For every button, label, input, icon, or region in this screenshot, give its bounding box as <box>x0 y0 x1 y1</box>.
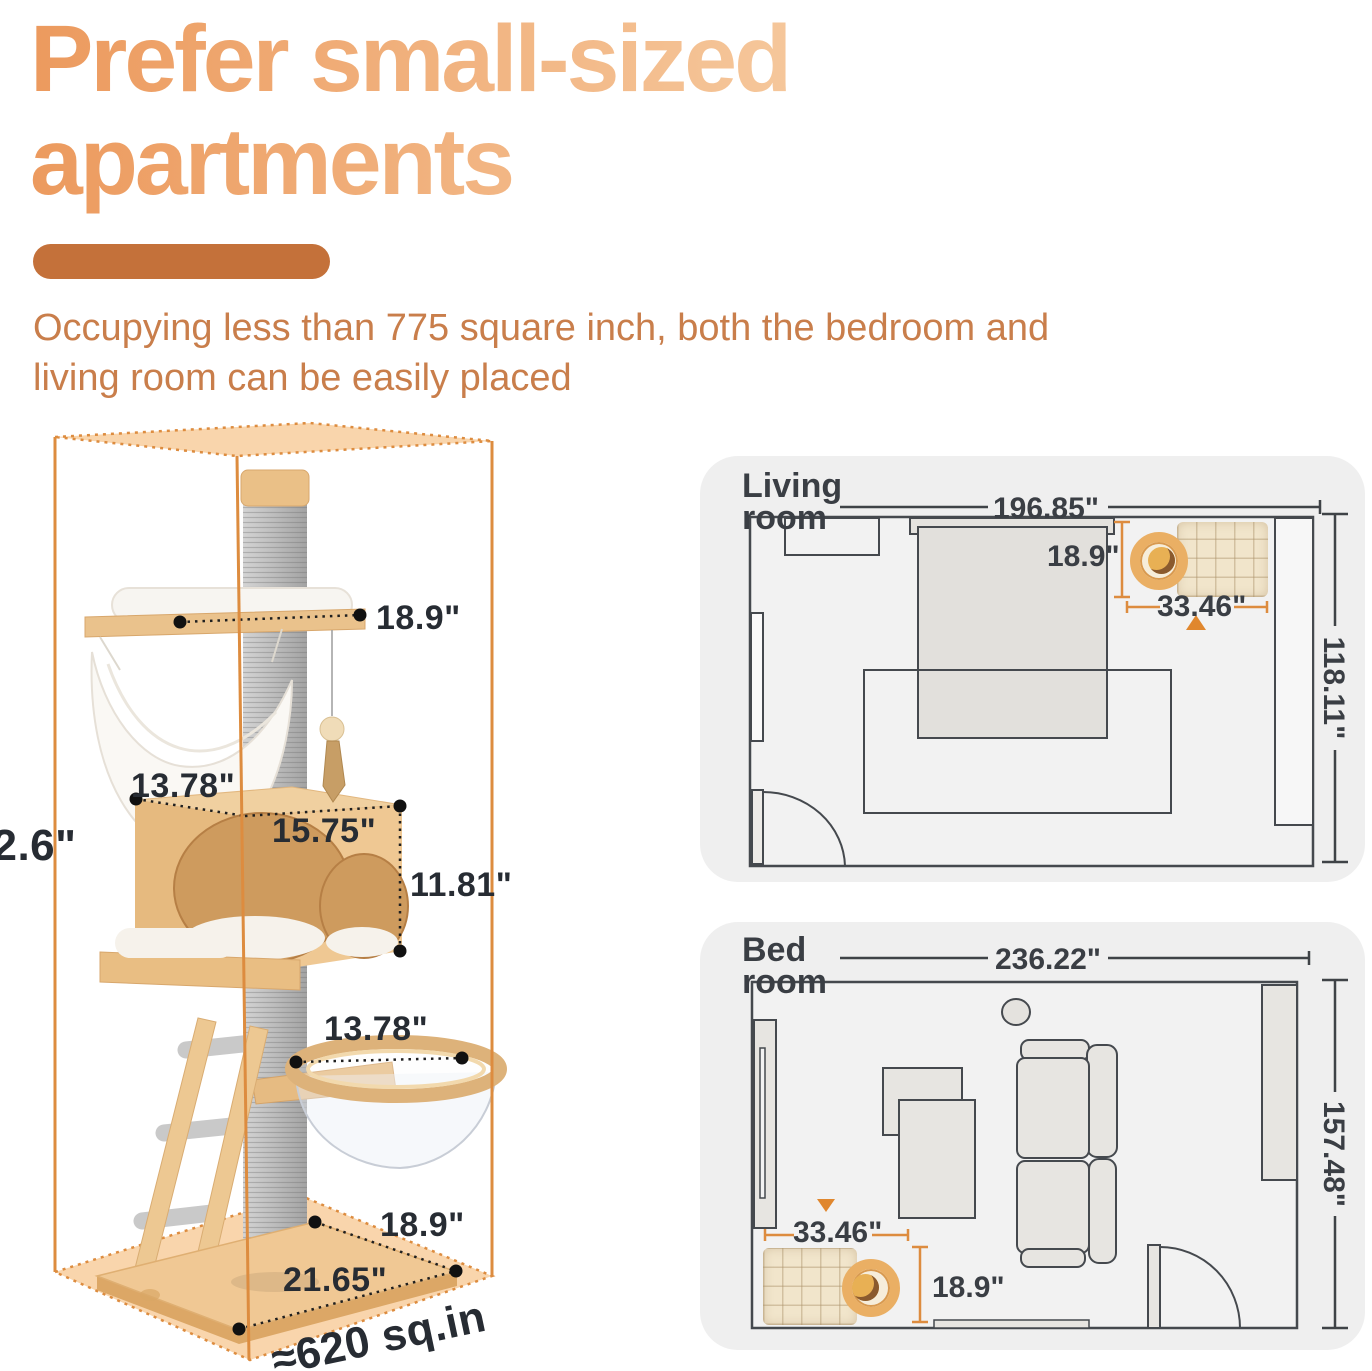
top-platform-width-label: 18.9" <box>376 599 461 638</box>
bottom-shelf <box>934 1320 1089 1328</box>
bowl-diameter-label: 13.78" <box>324 1010 428 1049</box>
page-title: Prefer small-sized apartments <box>30 8 1080 214</box>
product-infographic: Prefer small-sized apartments Occupying … <box>0 0 1372 1371</box>
living-room-title: Living room <box>742 470 842 534</box>
tree-depth-label: 18.9" <box>1047 540 1113 574</box>
condo-width-label: 15.75" <box>272 812 376 851</box>
tree-depth-label: 18.9" <box>932 1271 998 1305</box>
page-title-line1: Prefer small-sized <box>30 8 1080 111</box>
left-window <box>751 613 763 741</box>
door-leaf <box>1148 1245 1160 1328</box>
subtitle-line2: living room can be easily placed <box>33 353 1049 403</box>
subtitle-line1: Occupying less than 775 square inch, bot… <box>33 303 1049 353</box>
bedroom-width-label: 236.22" <box>988 943 1108 977</box>
bedroom-depth-label: 157.48" <box>1311 1094 1355 1214</box>
hanging-ball-toy <box>320 630 345 802</box>
sideboard <box>1275 518 1313 825</box>
door-leaf <box>752 790 763 864</box>
bedroom-title: Bed room <box>742 934 827 998</box>
pet-bed-pillow <box>1148 547 1175 574</box>
condo-height-label: 11.81" <box>410 866 512 905</box>
subtitle: Occupying less than 775 square inch, bot… <box>33 303 1049 403</box>
tree-width-label: 33.46" <box>1157 590 1237 624</box>
living-room-floorplan-panel: Living room 196.85" 118.11" 18.9" 33.46" <box>700 456 1365 882</box>
cat-mat <box>1177 522 1268 597</box>
living-room-depth-label: 118.11" <box>1311 628 1355 748</box>
tree-width-label: 33.46" <box>793 1216 873 1250</box>
bounding-box-top-face <box>55 423 492 456</box>
bedroom-floorplan-panel: Bed room 236.22" 157.48" 33.46" 18.9" <box>700 922 1365 1350</box>
living-room-width-label: 196.85" <box>986 492 1106 526</box>
bed <box>1017 1040 1117 1267</box>
condo-depth-label: 13.78" <box>131 767 235 806</box>
base-width-label: 21.65" <box>283 1261 387 1300</box>
top-platform <box>85 588 365 637</box>
desk-2 <box>899 1100 975 1218</box>
wardrobe <box>1262 985 1297 1180</box>
base-depth-label: 18.9" <box>380 1206 465 1245</box>
pet-bed-pillow <box>852 1274 879 1301</box>
accent-divider-bar <box>33 244 330 279</box>
tree-height-label: 62.6" <box>0 824 82 868</box>
pendant-light <box>1002 999 1030 1025</box>
page-title-line2: apartments <box>30 111 1080 214</box>
